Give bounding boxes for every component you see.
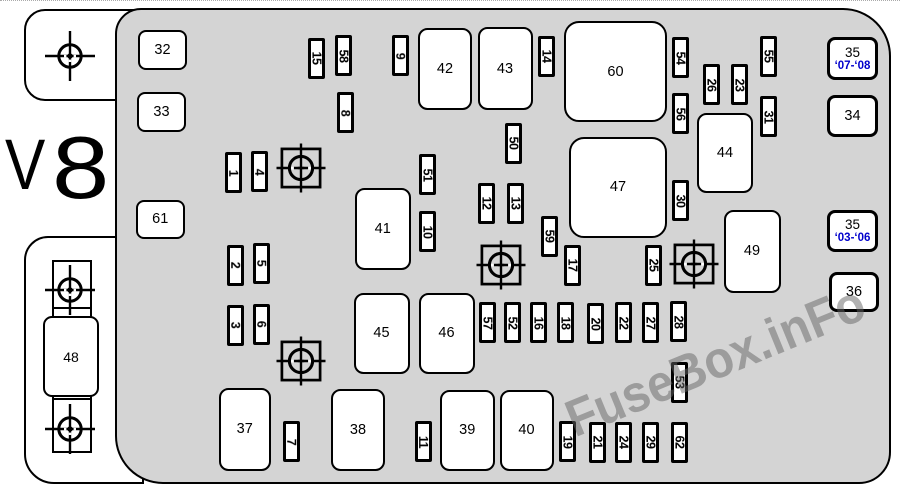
svg-text:FuseBox.inFo: FuseBox.inFo bbox=[558, 274, 874, 448]
